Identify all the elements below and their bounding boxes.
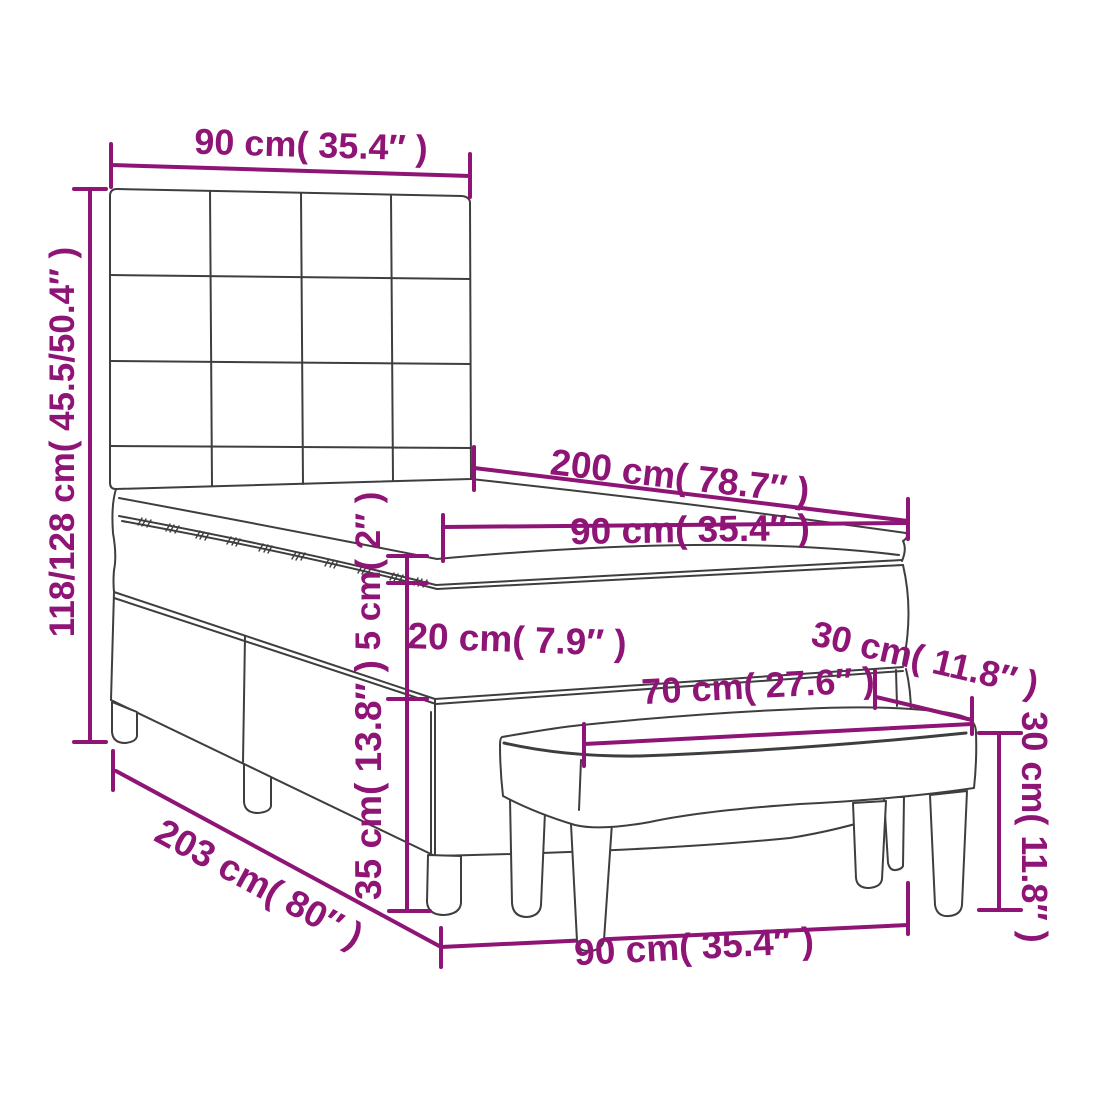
svg-text:5 cm( 2″ ): 5 cm( 2″ ) (349, 492, 388, 651)
svg-text:35 cm( 13.8″ ): 35 cm( 13.8″ ) (348, 660, 389, 900)
svg-text:118/128 cm( 45.5/50.4″ ): 118/128 cm( 45.5/50.4″ ) (43, 247, 82, 637)
svg-text:90 cm( 35.4″ ): 90 cm( 35.4″ ) (194, 121, 428, 169)
svg-text:20 cm( 7.9″ ): 20 cm( 7.9″ ) (407, 615, 628, 664)
svg-text:30 cm( 11.8″ ): 30 cm( 11.8″ ) (1014, 711, 1055, 942)
svg-text:90 cm( 35.4″ ): 90 cm( 35.4″ ) (570, 507, 811, 552)
